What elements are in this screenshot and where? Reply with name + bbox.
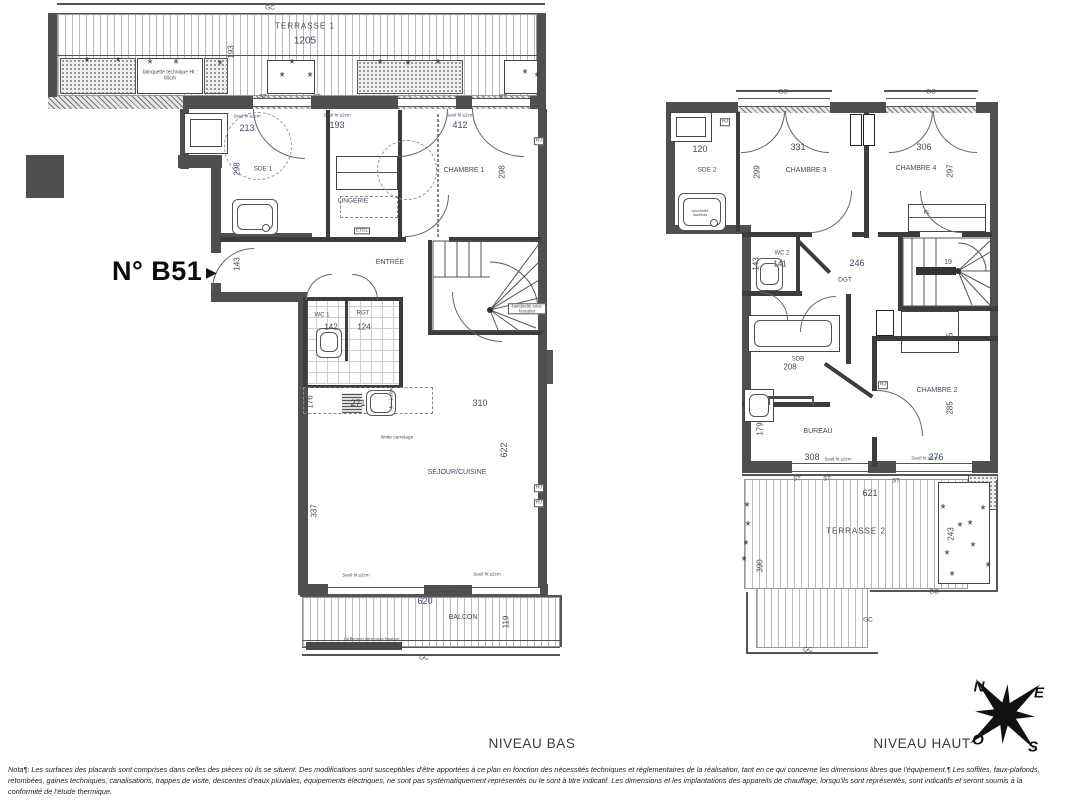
st-label: ST xyxy=(823,477,831,484)
plant-icon: * xyxy=(970,542,975,552)
rj-label: RJ xyxy=(534,137,544,145)
room-dgt: DGT xyxy=(838,276,852,283)
plant-icon: * xyxy=(405,60,410,70)
plant-icon: * xyxy=(985,562,990,572)
room-wc1: WC 1 xyxy=(315,313,330,320)
room-chambre3: CHAMBRE 3 xyxy=(786,167,827,175)
gc-label: GC xyxy=(778,88,788,95)
st-label: ST xyxy=(445,591,453,598)
plant-icon: * xyxy=(949,571,954,581)
plant-icon: * xyxy=(940,504,945,514)
seuil-note: Seuil ht ≤2cm xyxy=(342,574,369,579)
room-chambre1: CHAMBRE 1 xyxy=(444,167,485,175)
st-label: ST xyxy=(259,95,267,102)
room-balcon: BALCON xyxy=(449,614,478,622)
note-banquette-escalier: banquette sous l'escalier xyxy=(508,303,546,314)
st-label: ST xyxy=(313,95,321,102)
dim-620: 620 xyxy=(417,597,432,607)
room-bureau: BUREAU xyxy=(803,428,832,436)
dim-246: 246 xyxy=(849,259,864,269)
dim-193: 193 xyxy=(329,121,344,131)
plant-icon: * xyxy=(743,540,748,550)
plant-icon: * xyxy=(741,556,746,566)
note-allege: h = 1.10m xyxy=(390,388,395,408)
dim-193-v: 193 xyxy=(228,45,237,58)
dim-141: 141 xyxy=(773,261,786,270)
dim-1205: 1205 xyxy=(294,36,316,47)
dim-19: 19 xyxy=(944,259,952,267)
dim-213: 213 xyxy=(239,124,254,134)
rj-label: RJ xyxy=(720,118,730,126)
st-label: ST xyxy=(892,479,900,486)
st-label: ST xyxy=(499,95,507,102)
rj-label: RJ xyxy=(534,499,544,507)
gc-label: GC xyxy=(863,616,873,623)
plant-icon: * xyxy=(744,502,749,512)
dim-621: 621 xyxy=(862,489,877,499)
seuil-note: Seuil ht ≤2cm xyxy=(233,115,260,120)
dim-124: 124 xyxy=(357,324,370,333)
dim-297-v: 297 xyxy=(947,164,956,177)
dim-331: 331 xyxy=(790,143,805,153)
plant-icon: * xyxy=(147,59,152,69)
dim-243-v: 243 xyxy=(948,527,957,540)
st-label: ST xyxy=(793,477,801,484)
dim-306: 306 xyxy=(916,143,931,153)
note-douchette: douchette haut/bas xyxy=(687,209,713,217)
room-sde2: SDE 2 xyxy=(698,166,717,173)
dim-412: 412 xyxy=(452,121,467,131)
plant-icon: * xyxy=(944,550,949,560)
seuil-note: Seuil ht ≤2cm xyxy=(824,458,851,463)
dim-208: 208 xyxy=(783,364,796,373)
plant-icon: * xyxy=(377,59,382,69)
room-terrasse-2: TERRASSE 2 xyxy=(826,528,886,537)
gc-label: GC xyxy=(803,646,813,653)
rj-label: RJ xyxy=(534,484,544,492)
plant-icon: * xyxy=(522,69,527,79)
dim-142: 142 xyxy=(324,324,337,333)
dim-143-v: 143 xyxy=(234,257,243,270)
room-chambre4: CHAMBRE 4 xyxy=(896,165,937,173)
plant-icon: * xyxy=(289,59,294,69)
dim-143b-v: 143 xyxy=(753,257,762,270)
dim-65-v: 65 xyxy=(947,333,956,342)
room-chambre2: CHAMBRE 2 xyxy=(917,387,958,395)
note-banquette-technique: banquette technique Ht : 60cm xyxy=(141,71,199,82)
plant-icon: * xyxy=(217,60,222,70)
dim-179-v: 179 xyxy=(757,422,766,435)
dim-337-v: 337 xyxy=(311,504,320,517)
plan-labels: GCTERRASSE 11205193banquette technique H… xyxy=(0,0,1082,800)
dim-298-v: 298 xyxy=(234,162,243,175)
seuil-note: Seuil ht ≤2cm xyxy=(323,114,350,119)
plant-icon: * xyxy=(967,520,972,530)
plant-icon: * xyxy=(534,72,539,82)
plant-icon: * xyxy=(115,57,120,67)
gc-label: GC xyxy=(926,88,936,95)
plant-icon: * xyxy=(435,59,440,69)
pl-label: PL xyxy=(924,210,931,216)
dim-120: 120 xyxy=(692,145,707,155)
note-deflecteur: Déflecteur vitré toute hauteur xyxy=(344,638,399,643)
plant-icon: * xyxy=(173,59,178,69)
rj-label: RJ xyxy=(878,381,888,389)
note-limite-carrelage: limite carrelage xyxy=(381,435,414,440)
plant-icon: * xyxy=(957,522,962,532)
seuil-note: Seuil ht ≤2cm xyxy=(446,114,473,119)
plant-icon: * xyxy=(980,505,985,515)
room-entree: ENTRÉE xyxy=(376,259,404,267)
gc-label: GC xyxy=(929,588,939,595)
gc-label: GC xyxy=(265,4,275,11)
dim-271: 271 xyxy=(350,399,365,409)
st-label: ST xyxy=(309,591,317,598)
plant-icon: * xyxy=(745,521,750,531)
floor-plan-page: N E O S N° B51 ▶ NIVEAU BAS NIVEAU HAUT … xyxy=(0,0,1082,800)
dim-299-v: 299 xyxy=(754,165,763,178)
gc-label: GC xyxy=(419,654,429,661)
room-terrasse-1: TERRASSE 1 xyxy=(275,23,335,32)
room-rgt: RGT xyxy=(357,311,370,318)
plant-icon: * xyxy=(279,72,284,82)
room-wc2: WC 2 xyxy=(775,251,790,258)
dim-390-v: 390 xyxy=(757,559,766,572)
dim-176-v: 176 xyxy=(307,395,316,408)
seuil-note: Seuil ht ≤2cm xyxy=(911,457,938,462)
etel-label: ETEL xyxy=(354,227,370,234)
dim-119-v: 119 xyxy=(503,616,512,629)
seuil-note: Seuil ht ≤2cm xyxy=(473,573,500,578)
plant-icon: * xyxy=(307,72,312,82)
dim-308: 308 xyxy=(804,453,819,463)
plant-icon: * xyxy=(84,57,89,67)
dim-622-v: 622 xyxy=(500,442,510,457)
room-sejour-cuisine: SÉJOUR/CUISINE xyxy=(428,469,487,477)
dim-298b-v: 298 xyxy=(499,165,508,178)
dim-285-v: 285 xyxy=(947,401,956,414)
dim-310: 310 xyxy=(472,399,487,409)
room-lingerie: LINGERIE xyxy=(338,197,368,204)
room-sde1: SDE 1 xyxy=(254,165,273,172)
